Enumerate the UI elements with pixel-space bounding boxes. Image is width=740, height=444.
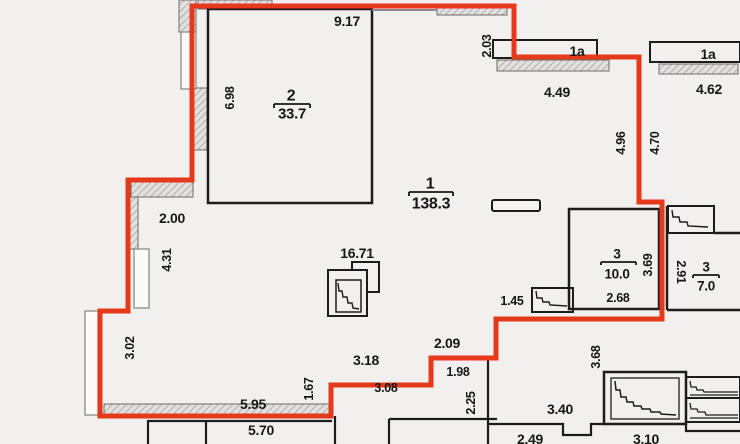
wall-pier-left-lower bbox=[134, 249, 149, 308]
dim-label-16-71: 16.71 bbox=[340, 245, 374, 261]
dim-label-2-91: 2.91 bbox=[674, 260, 688, 283]
wall-bottom bbox=[104, 404, 330, 414]
room-3b-area: 7.0 bbox=[697, 279, 715, 294]
dim-label-5-70: 5.70 bbox=[248, 422, 275, 438]
wall-pier-bottom-left bbox=[85, 311, 98, 415]
dim-label-1-98: 1.98 bbox=[446, 365, 469, 379]
dim-label-4-96: 4.96 bbox=[614, 131, 628, 154]
dim-label-3-10: 3.10 bbox=[633, 431, 660, 444]
floor-plan-document: 2 33.7 1 138.3 3 10.0 3 7.0 1a 1a 9.17 4… bbox=[0, 0, 740, 444]
dim-label-4-62: 4.62 bbox=[696, 81, 723, 97]
dim-label-1-45: 1.45 bbox=[500, 294, 523, 308]
dim-label-4-31: 4.31 bbox=[160, 248, 174, 271]
dim-label-1-67: 1.67 bbox=[302, 377, 316, 400]
room-1-number: 1 bbox=[426, 176, 435, 193]
balcony-2-rail bbox=[659, 64, 738, 74]
balcony-2-label: 1a bbox=[701, 46, 716, 62]
room-2-number: 2 bbox=[287, 88, 296, 105]
balcony-1-label: 1a bbox=[570, 43, 585, 59]
dim-label-4-49: 4.49 bbox=[544, 84, 571, 100]
dim-label-3-02: 3.02 bbox=[123, 336, 137, 359]
dim-label-5-95: 5.95 bbox=[240, 396, 267, 412]
balcony-1-rail bbox=[497, 60, 609, 71]
wall-left-mid bbox=[194, 88, 207, 150]
dim-label-2-09: 2.09 bbox=[434, 335, 461, 351]
dim-label-3-69: 3.69 bbox=[641, 253, 655, 276]
dim-label-2-49: 2.49 bbox=[517, 431, 544, 444]
floor-plan-canvas: 2 33.7 1 138.3 3 10.0 3 7.0 1a 1a 9.17 4… bbox=[0, 0, 740, 444]
room-2-area: 33.7 bbox=[278, 106, 306, 123]
dim-label-3-08: 3.08 bbox=[374, 381, 397, 395]
dim-label-9-17: 9.17 bbox=[334, 13, 361, 29]
dim-label-6-98: 6.98 bbox=[223, 86, 237, 109]
room-1-area: 138.3 bbox=[412, 196, 451, 213]
room-3a-area: 10.0 bbox=[604, 267, 629, 282]
room-3a-number: 3 bbox=[613, 247, 621, 262]
dim-label-2-68: 2.68 bbox=[606, 291, 629, 305]
dim-label-2-03: 2.03 bbox=[480, 34, 494, 57]
dim-label-3-40: 3.40 bbox=[547, 401, 574, 417]
dim-label-3-18: 3.18 bbox=[353, 352, 380, 368]
room-3b-number: 3 bbox=[702, 260, 710, 275]
dim-label-3-68: 3.68 bbox=[589, 345, 603, 368]
wall-step-horizontal bbox=[131, 182, 193, 197]
dim-label-4-70: 4.70 bbox=[648, 131, 662, 154]
dim-label-2-00: 2.00 bbox=[159, 210, 186, 226]
dim-label-2-25: 2.25 bbox=[464, 391, 478, 414]
column-block bbox=[492, 200, 540, 211]
